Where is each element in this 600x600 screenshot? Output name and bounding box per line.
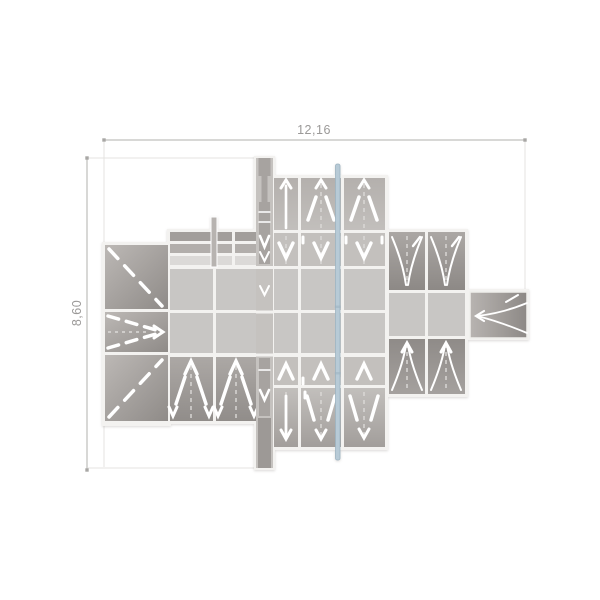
- section-line[interactable]: [335, 164, 341, 460]
- plan-viewport[interactable]: 12,16 8,60: [0, 0, 600, 600]
- upper-roof-wing[interactable]: [274, 178, 385, 266]
- barrel-roof-extension[interactable]: [470, 292, 527, 338]
- hip-roof-block[interactable]: [105, 245, 168, 421]
- plan-view-canvas[interactable]: 12,16 8,60: [0, 0, 600, 600]
- roof-mast-strip[interactable]: [256, 158, 273, 468]
- height-dimension: 8,60: [70, 156, 89, 471]
- height-dimension-label: 8,60: [70, 300, 84, 326]
- width-dimension: 12,16: [102, 123, 526, 142]
- support-pole[interactable]: [211, 217, 217, 267]
- lower-roof-wing[interactable]: [274, 357, 385, 447]
- width-dimension-label: 12,16: [297, 123, 331, 137]
